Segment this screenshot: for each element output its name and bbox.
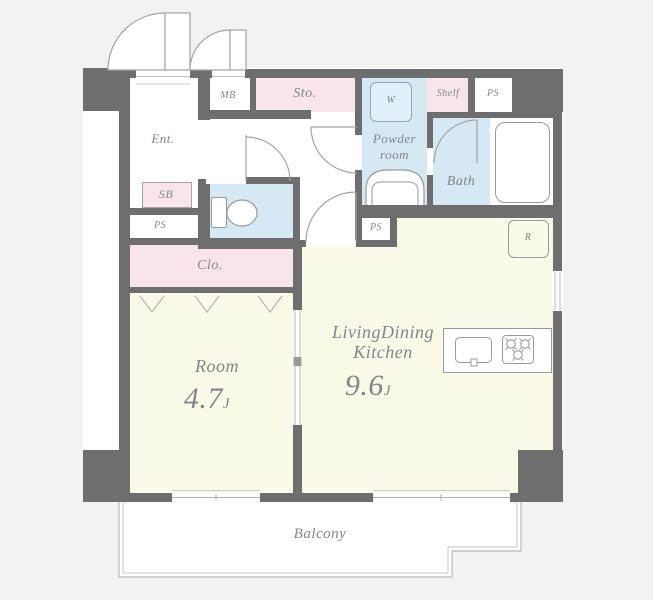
balcony-label: Balcony [270, 525, 370, 543]
wall [250, 78, 256, 113]
storage-label: Sto. [280, 86, 330, 103]
bathtub [495, 122, 550, 203]
bath-door-opening [427, 148, 433, 175]
powder-room-label: Powder room [362, 131, 427, 163]
pipe-space-left-label: PS [146, 220, 174, 232]
entrance-opening [136, 69, 190, 78]
meter-box-door-leaf [230, 30, 246, 70]
meter-box-opening [212, 69, 245, 78]
pipe-space-mid-label: PS [362, 222, 390, 234]
refrigerator-label: R [514, 232, 542, 244]
meter-box-door-arc [190, 30, 230, 70]
wall [119, 69, 130, 455]
wall [293, 240, 306, 247]
wall [427, 118, 433, 148]
stove [502, 335, 534, 364]
ldk-name: LivingDining Kitchen [308, 322, 458, 362]
ldk-door-opening [306, 240, 356, 247]
wall [355, 205, 562, 218]
wall [293, 425, 302, 493]
powder-room-label-line1: Powder [373, 131, 416, 146]
wall [83, 450, 130, 502]
entrance-door-leaf [165, 13, 190, 70]
bedroom-size-value: 4.7 [184, 382, 223, 415]
ldk-size-unit: J [384, 383, 391, 399]
meter-box-label: MB [214, 90, 242, 102]
wall [390, 218, 397, 240]
wall [468, 73, 475, 112]
wall [246, 177, 300, 184]
wall [119, 208, 198, 215]
bedroom-window [172, 493, 260, 502]
wall [119, 287, 302, 293]
wall [356, 240, 397, 247]
closet-label: Clo. [185, 258, 235, 275]
wall [208, 110, 311, 119]
bedroom-size-unit: J [223, 396, 230, 412]
partition-sliding-door [293, 310, 302, 425]
toilet-tank [211, 197, 227, 228]
wall [427, 112, 553, 118]
washer-label: W [377, 95, 405, 107]
wall [293, 245, 302, 310]
ldk-size: 9.6J [313, 368, 423, 404]
pipe-space-top-label: PS [479, 88, 507, 100]
entrance-label: Ent. [146, 131, 180, 147]
ldk-size-value: 9.6 [345, 369, 384, 402]
ldk-name-line1: LivingDining [332, 322, 434, 342]
wall [512, 69, 563, 112]
ldk-name-line2: Kitchen [353, 342, 413, 362]
wall [119, 238, 300, 245]
wall [355, 69, 362, 135]
powder-door-opening [355, 135, 362, 170]
ldk-window [373, 493, 510, 502]
bedroom-size: 4.7J [152, 381, 262, 417]
toilet-door-opening [206, 177, 246, 184]
bedroom-name: Room [177, 356, 257, 378]
bath-floor [433, 118, 490, 205]
right-window [552, 271, 563, 311]
shoe-box-label: SB [152, 187, 180, 201]
wall [427, 175, 433, 205]
powder-room-label-line2: room [380, 147, 409, 162]
kitchen-sink [455, 337, 492, 363]
shelf-label: Shelf [430, 88, 466, 100]
floor-plan: Ent. MB Sto. W Shelf PS Powder room Bath… [0, 0, 653, 600]
entrance-door-arc [108, 13, 165, 70]
bath-label: Bath [437, 174, 485, 191]
